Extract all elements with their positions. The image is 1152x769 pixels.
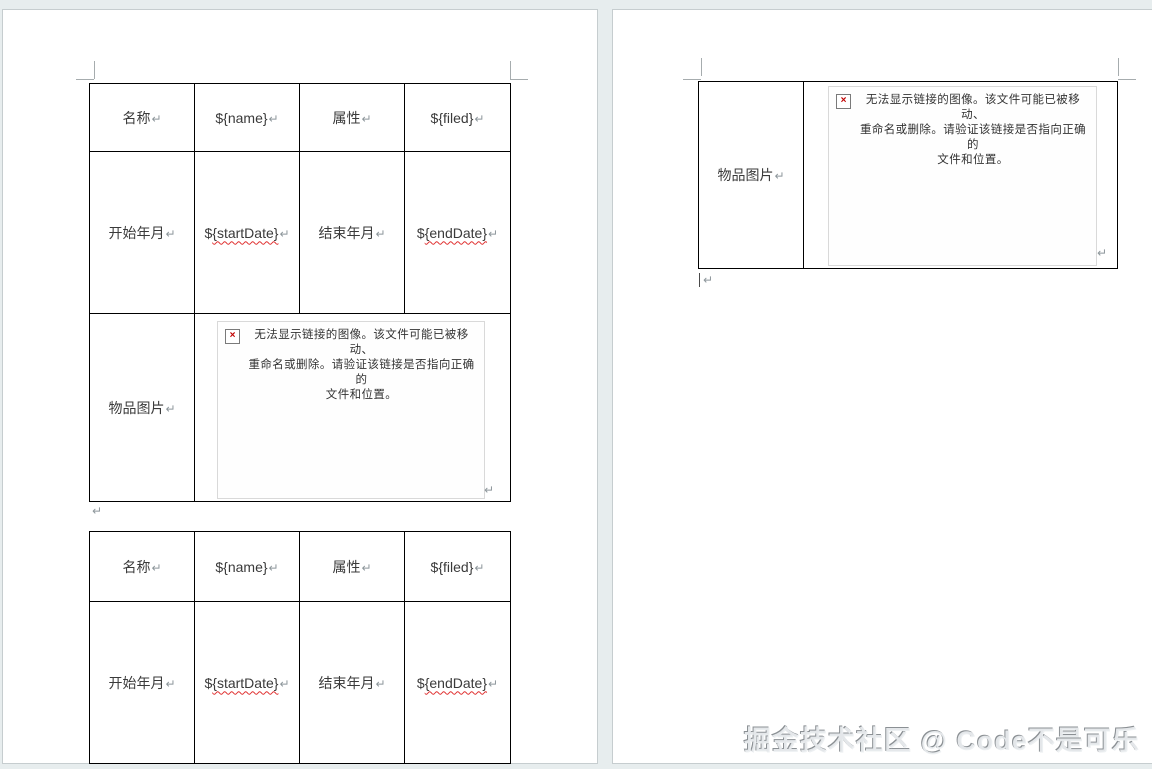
cell-label: 结束年月 bbox=[318, 225, 374, 241]
crop-mark-top-left bbox=[701, 58, 702, 76]
error-line: 文件和位置。 bbox=[858, 153, 1088, 168]
cell-label: 属性 bbox=[332, 110, 360, 126]
crop-mark-top-right bbox=[510, 79, 528, 80]
table-cell[interactable]: ${startDate}↵ bbox=[195, 602, 300, 764]
broken-image-error-text: 无法显示链接的图像。该文件可能已被移动、 重命名或删除。请验证该链接是否指向正确… bbox=[247, 328, 476, 403]
table-cell[interactable]: ${filed}↵ bbox=[405, 84, 511, 152]
table-cell[interactable]: 物品图片↵ bbox=[90, 314, 195, 502]
paragraph-mark: ↵ bbox=[269, 561, 279, 575]
cell-label: ${filed} bbox=[431, 110, 474, 126]
cell-label: 属性 bbox=[332, 559, 360, 575]
app-background: { "page1": { "table_top": { "r1c1": "名称"… bbox=[0, 0, 1152, 769]
paragraph-mark: ↵ bbox=[165, 227, 175, 241]
cell-label-misspelled: {startDate} bbox=[212, 675, 278, 691]
paragraph-mark: ↵ bbox=[488, 677, 498, 691]
text-cursor bbox=[699, 273, 700, 287]
cell-label-misspelled: {endDate} bbox=[425, 675, 487, 691]
paragraph-mark: ↵ bbox=[703, 273, 713, 287]
cell-label: 物品图片 bbox=[108, 400, 164, 416]
paragraph-mark: ↵ bbox=[361, 112, 371, 126]
broken-image-placeholder[interactable]: × 无法显示链接的图像。该文件可能已被移动、 重命名或删除。请验证该链接是否指向… bbox=[828, 86, 1097, 266]
broken-image-error-text: 无法显示链接的图像。该文件可能已被移动、 重命名或删除。请验证该链接是否指向正确… bbox=[858, 93, 1088, 168]
table-cell[interactable]: 物品图片↵ bbox=[699, 82, 804, 269]
paragraph-mark: ↵ bbox=[279, 227, 289, 241]
paragraph-mark: ↵ bbox=[151, 112, 161, 126]
paragraph-mark: ↵ bbox=[361, 561, 371, 575]
table-cell[interactable]: ${startDate}↵ bbox=[195, 152, 300, 314]
crop-mark-top-left bbox=[94, 61, 95, 79]
cell-label-misspelled: {startDate} bbox=[212, 225, 278, 241]
paragraph-mark: ↵ bbox=[92, 504, 102, 518]
paragraph-mark: ↵ bbox=[488, 227, 498, 241]
cell-label: $ bbox=[417, 675, 425, 691]
paragraph-mark: ↵ bbox=[484, 483, 494, 497]
cell-label: ${filed} bbox=[431, 559, 474, 575]
paragraph-mark: ↵ bbox=[774, 169, 784, 183]
document-page-right[interactable]: 物品图片↵ × 无法显示链接的图像。该文件可能已被移动、 重命名或删除。请验证该… bbox=[612, 9, 1152, 764]
table-cell[interactable]: 结束年月↵ bbox=[300, 602, 405, 764]
error-line: 无法显示链接的图像。该文件可能已被移动、 bbox=[247, 328, 476, 358]
table-cell[interactable]: ${endDate}↵ bbox=[405, 602, 511, 764]
cell-label: ${name} bbox=[215, 559, 267, 575]
image-cell[interactable]: × 无法显示链接的图像。该文件可能已被移动、 重命名或删除。请验证该链接是否指向… bbox=[804, 82, 1118, 269]
broken-image-x-icon: × bbox=[225, 329, 240, 344]
table-cell[interactable]: ${filed}↵ bbox=[405, 532, 511, 602]
watermark: 掘金技术社区 @ Code不是可乐 bbox=[744, 719, 1140, 758]
paragraph-mark: ↵ bbox=[151, 561, 161, 575]
table-cell[interactable]: ${name}↵ bbox=[195, 532, 300, 602]
table-cell[interactable]: ${endDate}↵ bbox=[405, 152, 511, 314]
cell-label: 名称 bbox=[122, 559, 150, 575]
crop-mark-top-right bbox=[510, 61, 511, 79]
paragraph-mark: ↵ bbox=[165, 402, 175, 416]
paragraph-mark: ↵ bbox=[474, 561, 484, 575]
cell-label: $ bbox=[417, 225, 425, 241]
error-line: 无法显示链接的图像。该文件可能已被移动、 bbox=[858, 93, 1088, 123]
paragraph-mark: ↵ bbox=[269, 112, 279, 126]
cell-label: ${name} bbox=[215, 110, 267, 126]
cell-label: 开始年月 bbox=[108, 225, 164, 241]
paragraph-mark: ↵ bbox=[474, 112, 484, 126]
table-cell[interactable]: 属性↵ bbox=[300, 84, 405, 152]
document-page-left[interactable]: 名称↵ ${name}↵ 属性↵ ${filed}↵ 开始年月↵ ${start… bbox=[2, 9, 598, 764]
error-line: 重命名或删除。请验证该链接是否指向正确的 bbox=[858, 123, 1088, 153]
cell-label: 开始年月 bbox=[108, 675, 164, 691]
table-cell[interactable]: 名称↵ bbox=[90, 84, 195, 152]
item-image-table: 物品图片↵ × 无法显示链接的图像。该文件可能已被移动、 重命名或删除。请验证该… bbox=[698, 81, 1118, 269]
image-cell[interactable]: × 无法显示链接的图像。该文件可能已被移动、 重命名或删除。请验证该链接是否指向… bbox=[195, 314, 511, 502]
cell-label: 结束年月 bbox=[318, 675, 374, 691]
paragraph-mark: ↵ bbox=[1097, 246, 1107, 260]
crop-mark-top-right bbox=[1118, 79, 1136, 80]
broken-image-placeholder[interactable]: × 无法显示链接的图像。该文件可能已被移动、 重命名或删除。请验证该链接是否指向… bbox=[217, 321, 485, 499]
template-table-top: 名称↵ ${name}↵ 属性↵ ${filed}↵ 开始年月↵ ${start… bbox=[89, 83, 511, 502]
table-cell[interactable]: 名称↵ bbox=[90, 532, 195, 602]
table-cell[interactable]: 开始年月↵ bbox=[90, 602, 195, 764]
cell-label: 名称 bbox=[122, 110, 150, 126]
paragraph-mark: ↵ bbox=[375, 227, 385, 241]
table-cell[interactable]: ${name}↵ bbox=[195, 84, 300, 152]
paragraph-mark: ↵ bbox=[279, 677, 289, 691]
table-cell[interactable]: 属性↵ bbox=[300, 532, 405, 602]
error-line: 重命名或删除。请验证该链接是否指向正确的 bbox=[247, 358, 476, 388]
cell-label: 物品图片 bbox=[717, 167, 773, 183]
crop-mark-top-left bbox=[76, 79, 94, 80]
table-cell[interactable]: 结束年月↵ bbox=[300, 152, 405, 314]
template-table-bottom: 名称↵ ${name}↵ 属性↵ ${filed}↵ 开始年月↵ ${start… bbox=[89, 531, 511, 764]
paragraph-mark: ↵ bbox=[165, 677, 175, 691]
crop-mark-top-left bbox=[683, 79, 701, 80]
cell-label-misspelled: {endDate} bbox=[425, 225, 487, 241]
broken-image-x-icon: × bbox=[836, 94, 851, 109]
paragraph-mark: ↵ bbox=[375, 677, 385, 691]
error-line: 文件和位置。 bbox=[247, 388, 476, 403]
crop-mark-top-right bbox=[1118, 58, 1119, 76]
table-cell[interactable]: 开始年月↵ bbox=[90, 152, 195, 314]
